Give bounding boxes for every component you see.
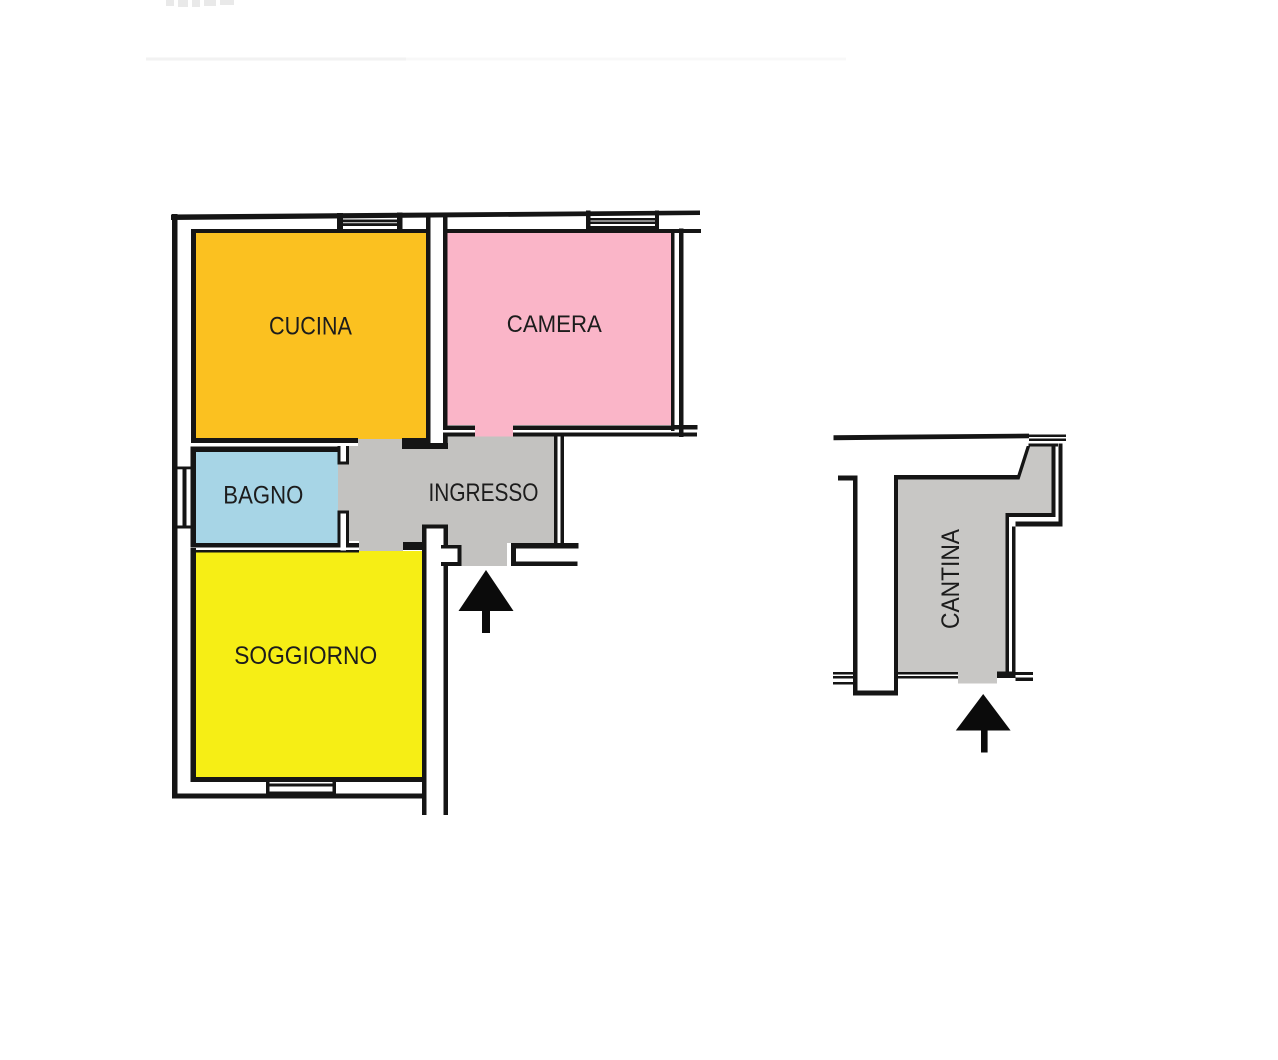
svg-text:CANTINA: CANTINA <box>937 529 965 629</box>
svg-text:CUCINA: CUCINA <box>269 313 352 341</box>
svg-text:CAMERA: CAMERA <box>507 311 603 338</box>
svg-text:SOGGIORNO: SOGGIORNO <box>234 642 377 670</box>
svg-text:INGRESSO: INGRESSO <box>429 479 539 507</box>
svg-text:BAGNO: BAGNO <box>223 482 303 510</box>
